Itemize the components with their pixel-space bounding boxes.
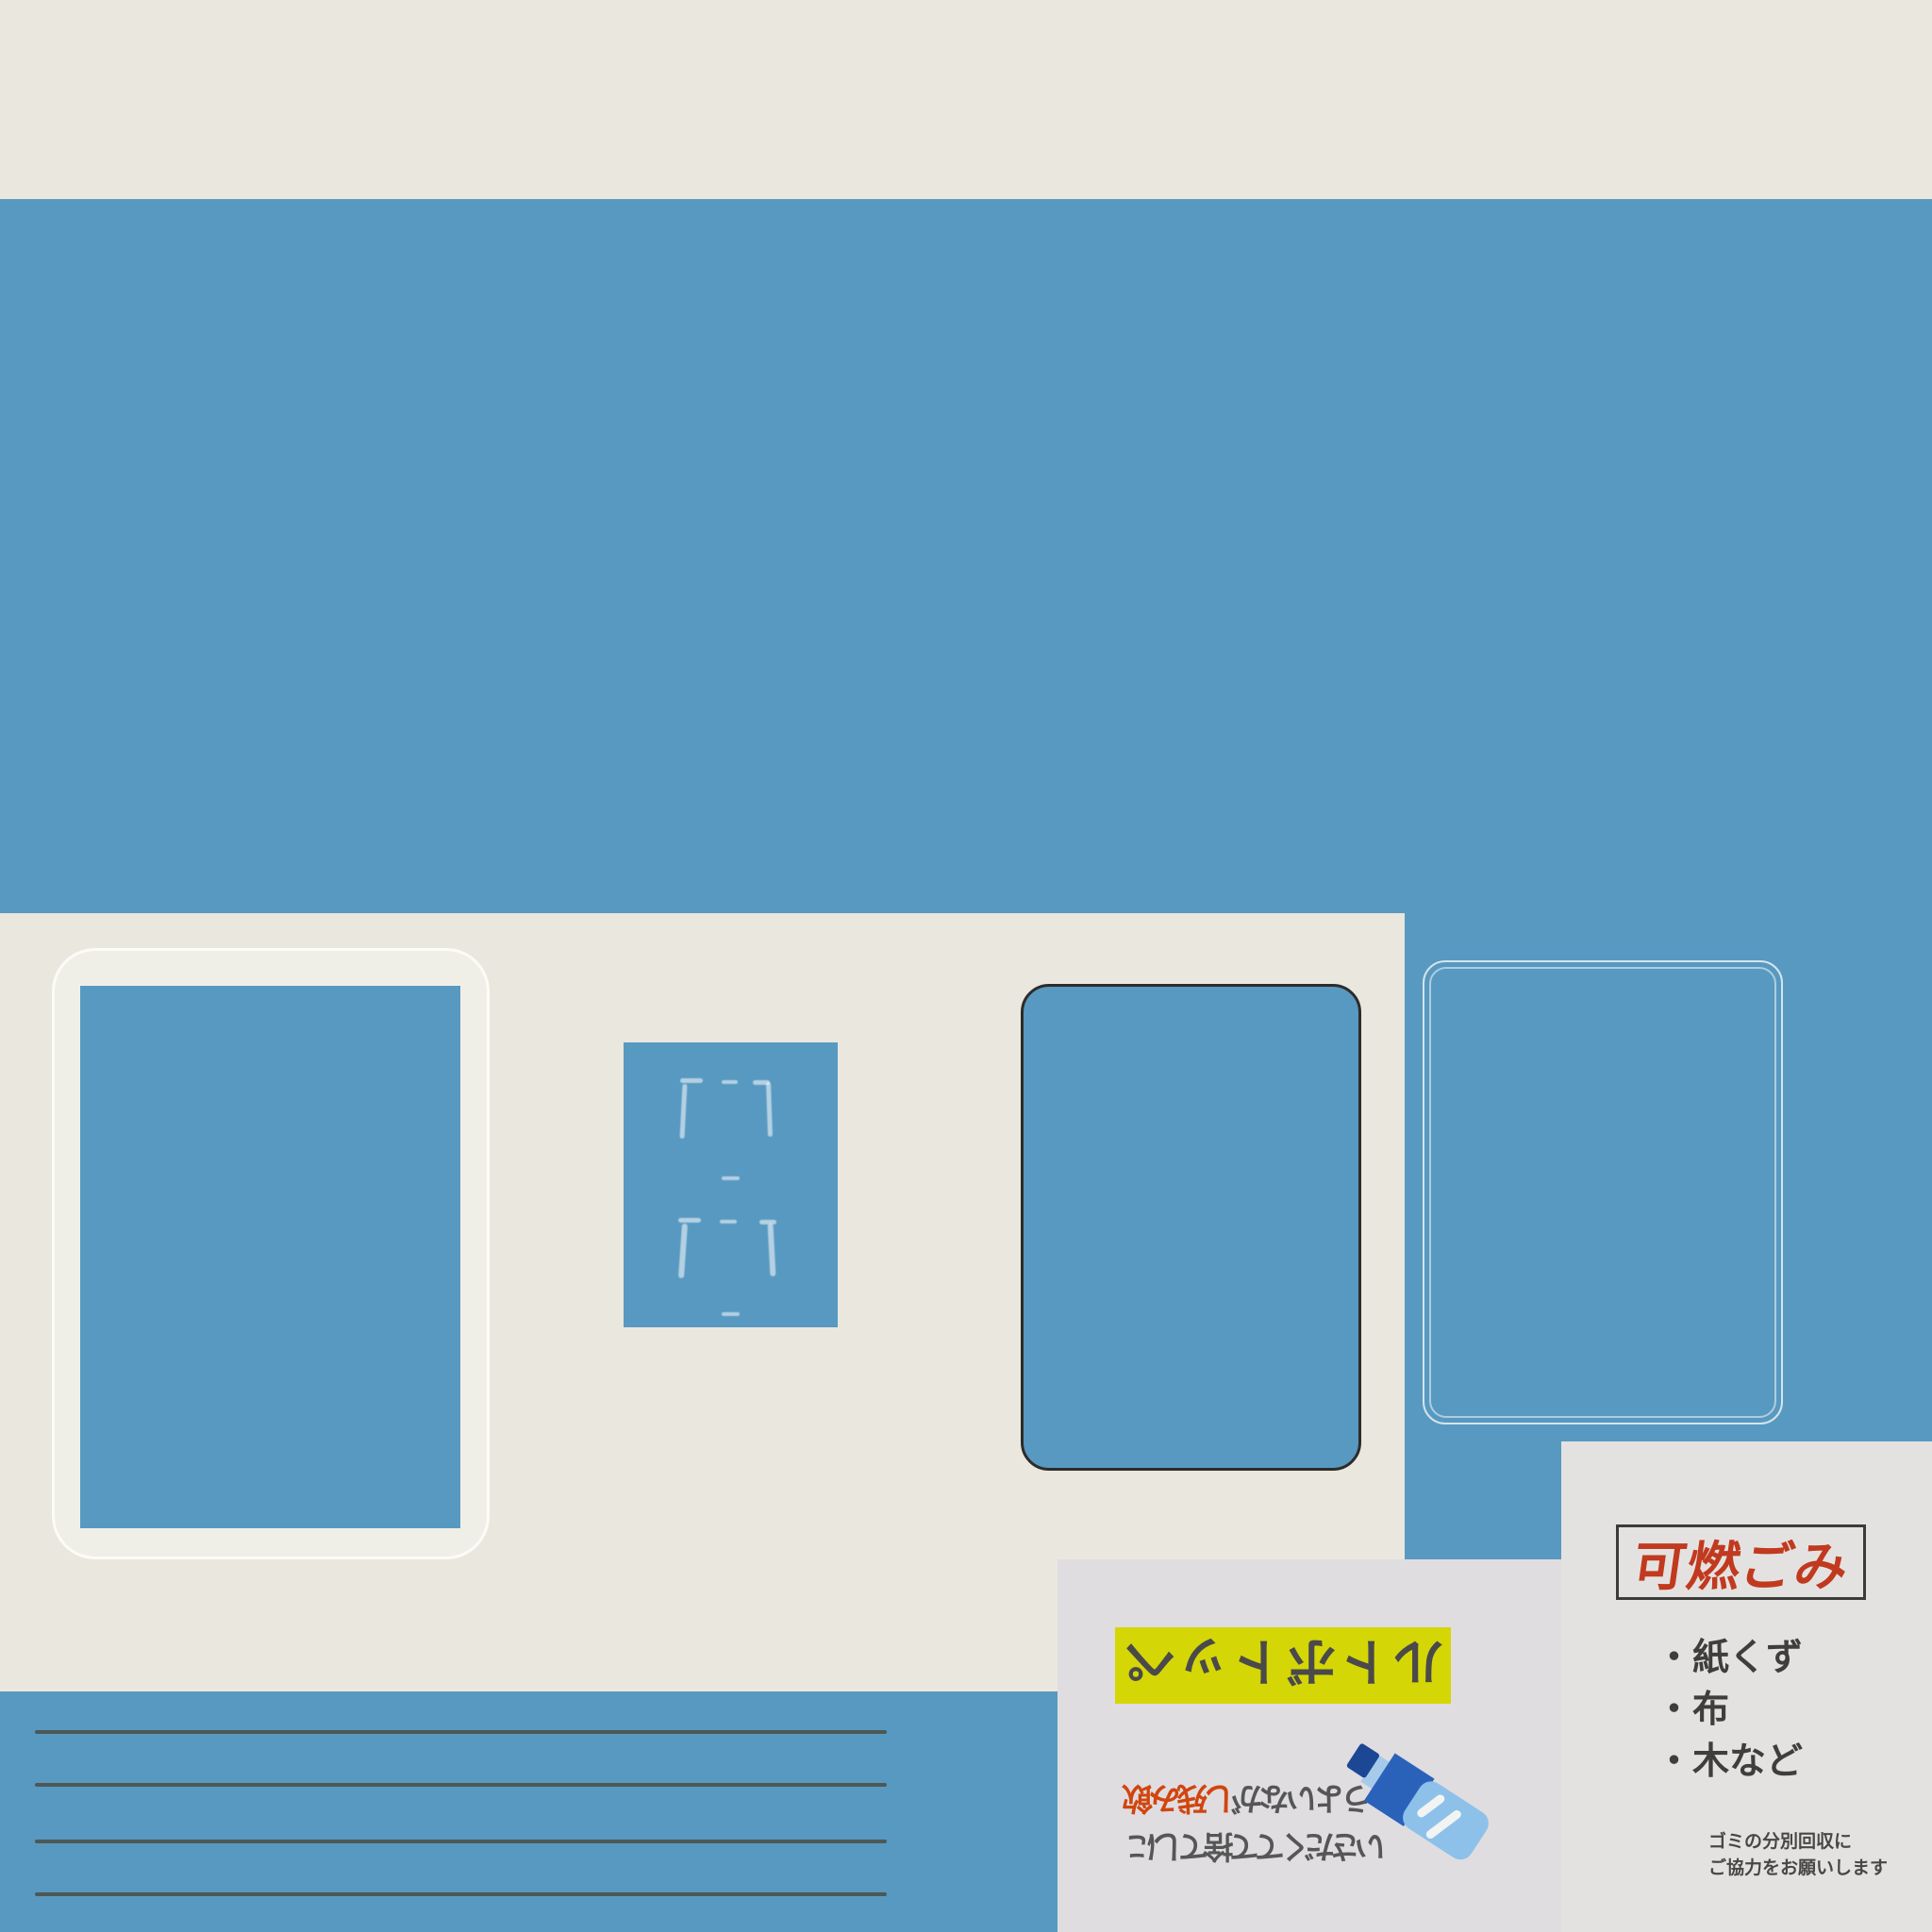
- upper-wall-blue-band: [0, 199, 1932, 913]
- shutter-line: [35, 1783, 887, 1787]
- dark-framed-blue-panel: [1021, 984, 1361, 1471]
- pet-bottle-icon: [1321, 1712, 1519, 1873]
- burnable-title: 可燃ごみ: [1628, 1524, 1854, 1601]
- pet-notice-emphasis-text: 飲み残し: [1125, 1780, 1235, 1817]
- cooperation-note-line-1: ゴミの分別回収に: [1708, 1828, 1888, 1855]
- shutter-line: [35, 1892, 887, 1896]
- shutter-line: [35, 1840, 887, 1843]
- shutter-line: [35, 1730, 887, 1734]
- pet-notice-title-highlight: ペットボトル: [1115, 1627, 1451, 1704]
- burnable-item: ・布: [1656, 1684, 1803, 1736]
- burnable-item: ・木など: [1656, 1736, 1803, 1788]
- blue-poster: [80, 986, 460, 1528]
- small-blue-plate: [624, 1042, 838, 1327]
- pet-bottle-notice-paper: ペットボトル 飲み残しがないよう にして捨ててください: [1058, 1559, 1623, 1932]
- burnable-title-box: 可燃ごみ: [1616, 1524, 1866, 1600]
- pet-notice-title: ペットボトル: [1122, 1628, 1444, 1703]
- burnable-item-list: ・紙くず ・布 ・木など: [1656, 1632, 1803, 1788]
- chalk-outlined-panel: [1423, 960, 1783, 1424]
- burnable-garbage-notice-paper: 可燃ごみ ・紙くず ・布 ・木など ゴミの分別回収に ご協力をお願いします: [1561, 1441, 1932, 1932]
- cooperation-note: ゴミの分別回収に ご協力をお願いします: [1708, 1828, 1888, 1881]
- burnable-item: ・紙くず: [1656, 1632, 1803, 1684]
- cooperation-note-line-2: ご協力をお願いします: [1708, 1855, 1888, 1881]
- garbage-collection-wall: ペットボトル 飲み残しがないよう にして捨ててください 可燃ごみ ・紙くず ・布…: [0, 0, 1932, 1932]
